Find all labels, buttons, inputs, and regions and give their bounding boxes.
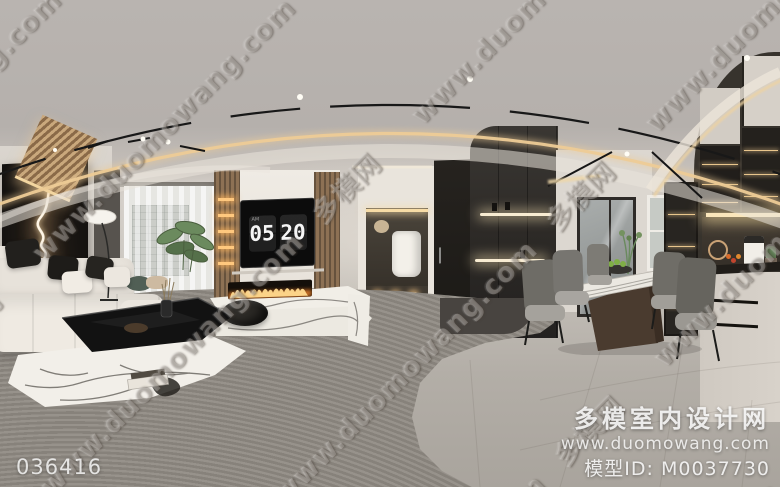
site-name: 多模室内设计网 <box>561 399 770 434</box>
flip-clock-hour-card: AM 05 <box>249 215 276 252</box>
door-handle <box>439 247 441 263</box>
closet-hat <box>374 220 389 233</box>
glass-display-cabinet <box>742 128 780 212</box>
tall-glass-cabinet <box>664 182 698 336</box>
fruit-decor <box>736 254 741 259</box>
wood-slat-panel-right <box>314 172 340 302</box>
pillow-black <box>4 238 41 269</box>
brand-block: 多模室内设计网 www.duomowang.com 模型ID: M0037730 <box>561 399 770 481</box>
model-id-label: 模型ID: <box>584 458 654 480</box>
lit-shelf <box>744 196 778 197</box>
shelf-decor <box>505 202 510 210</box>
fruit-decor <box>726 254 731 259</box>
lit-shelf <box>668 214 695 215</box>
wardrobe-shelf-light <box>480 213 552 216</box>
shelf-decor <box>492 203 497 211</box>
slat-accent-light <box>218 262 234 265</box>
lit-shelf <box>744 150 778 151</box>
lit-shelf <box>702 202 738 203</box>
image-id-label: 036416 <box>16 455 102 479</box>
sofa-chaise <box>120 300 172 354</box>
pillow-white <box>104 267 131 288</box>
cactus-pot <box>766 246 776 258</box>
flip-clock-hour: 05 <box>249 221 274 246</box>
lit-shelf <box>668 246 695 247</box>
kitchen-upper-door <box>700 88 740 144</box>
coffee-machine <box>744 236 764 266</box>
tv-screen: AM 05 20 <box>240 198 315 269</box>
lit-shelf <box>668 278 695 279</box>
fireplace <box>228 280 312 300</box>
wardrobe-base <box>440 298 534 334</box>
floor-knot-cushion <box>222 300 268 326</box>
fruit-decor <box>731 258 736 263</box>
hanging-shirt <box>392 231 421 277</box>
fruit-bowl <box>604 265 632 274</box>
slat-accent-light <box>218 214 234 217</box>
slat-accent-light <box>218 230 234 233</box>
kitchen-upper-door <box>742 56 780 126</box>
drawer-handle <box>712 323 758 328</box>
panorama-render: AM 05 20 <box>0 0 780 487</box>
model-id-value: M0037730 <box>661 458 770 480</box>
flip-clock-meridiem: AM <box>252 218 260 223</box>
closet-light <box>366 209 428 212</box>
sliding-glass-door <box>577 197 636 317</box>
site-url: www.duomowang.com <box>561 434 770 454</box>
lit-shelf <box>744 174 778 175</box>
slat-accent-light <box>218 246 234 249</box>
shelf-decor <box>520 250 525 258</box>
lit-shelf <box>668 306 695 307</box>
throw-blanket <box>146 276 168 289</box>
lit-shelf <box>702 164 738 165</box>
under-cabinet-light <box>706 213 780 217</box>
glass-display-cabinet <box>700 146 740 212</box>
slat-accent-light <box>218 198 234 201</box>
flip-clock-minute-card: 20 <box>280 214 307 251</box>
wardrobe-shelf-light <box>475 259 545 262</box>
lit-shelf <box>702 184 738 185</box>
fireplace-flames <box>228 280 312 300</box>
flip-clock-minute: 20 <box>280 220 305 245</box>
apple <box>620 261 626 267</box>
drawer-handle <box>712 299 758 304</box>
ring-decor <box>708 240 728 260</box>
model-id-line: 模型ID: M0037730 <box>561 454 770 481</box>
